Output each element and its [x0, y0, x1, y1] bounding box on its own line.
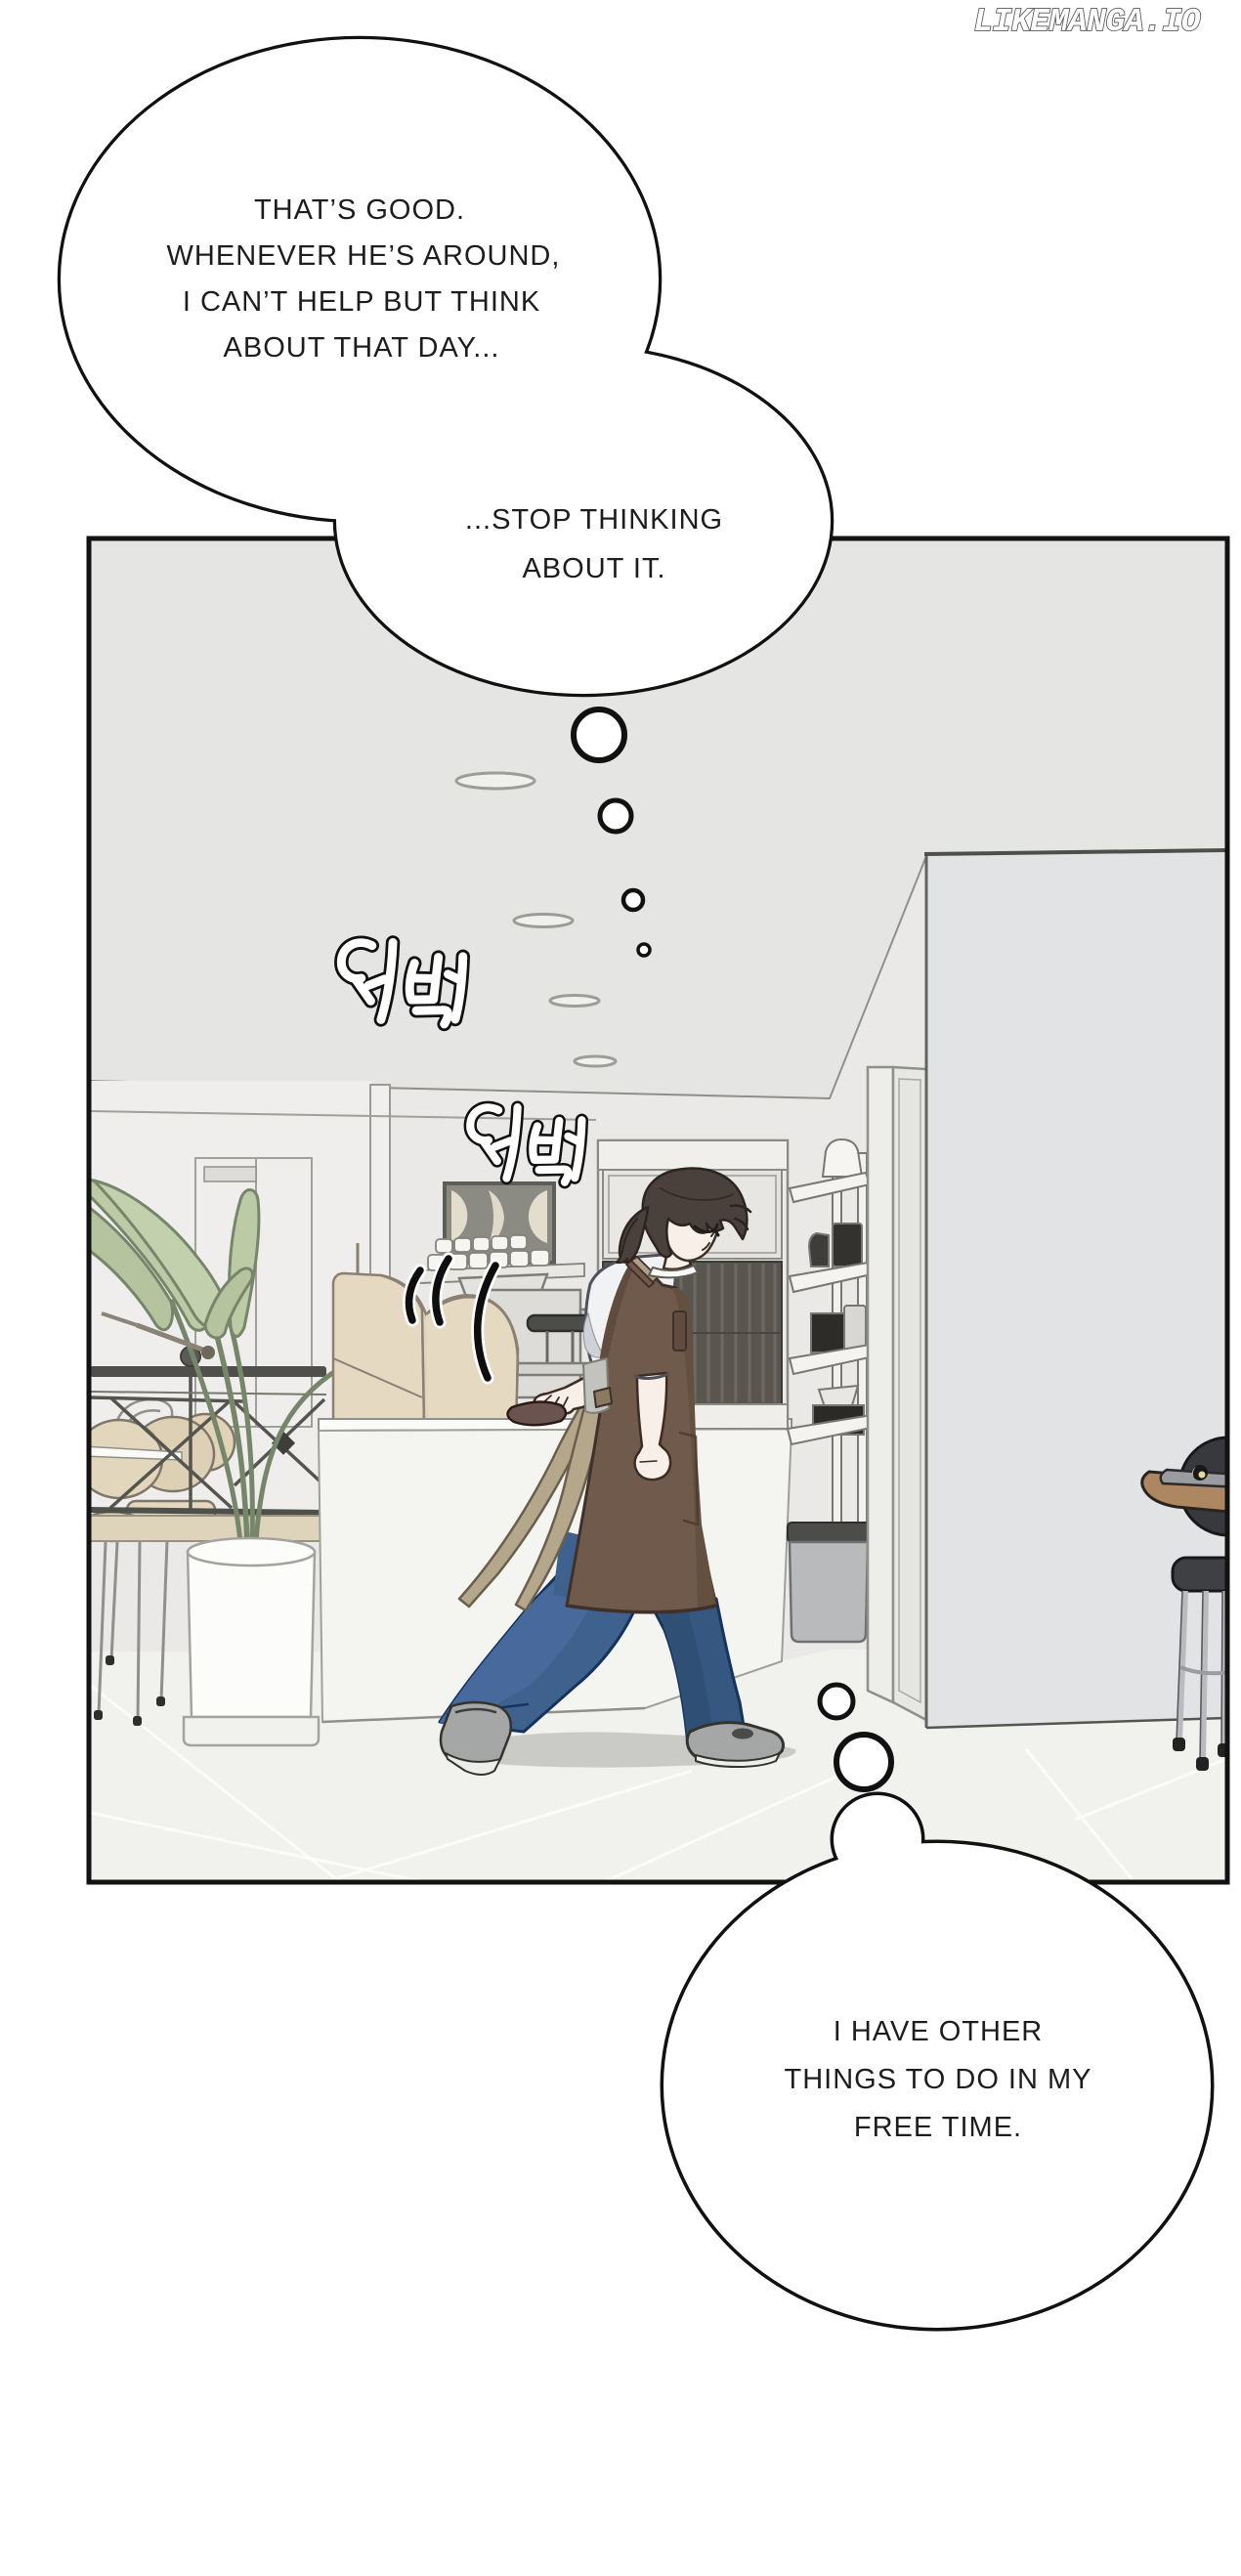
svg-text:ABOUT IT.: ABOUT IT.: [522, 553, 665, 584]
svg-text:FREE TIME.: FREE TIME.: [854, 2112, 1022, 2143]
svg-text:I CAN’T HELP BUT THINK: I CAN’T HELP BUT THINK: [183, 286, 540, 318]
svg-text:THAT’S GOOD.: THAT’S GOOD.: [254, 194, 465, 226]
svg-text:ABOUT THAT DAY...: ABOUT THAT DAY...: [224, 332, 500, 364]
svg-text:LIKEMANGA.IO: LIKEMANGA.IO: [973, 4, 1200, 40]
svg-text:WHENEVER HE’S AROUND,: WHENEVER HE’S AROUND,: [167, 240, 561, 272]
svg-text:I HAVE OTHER: I HAVE OTHER: [834, 2016, 1044, 2047]
svg-text:...STOP THINKING: ...STOP THINKING: [465, 504, 723, 536]
svg-text:THINGS TO DO IN MY: THINGS TO DO IN MY: [784, 2064, 1091, 2095]
